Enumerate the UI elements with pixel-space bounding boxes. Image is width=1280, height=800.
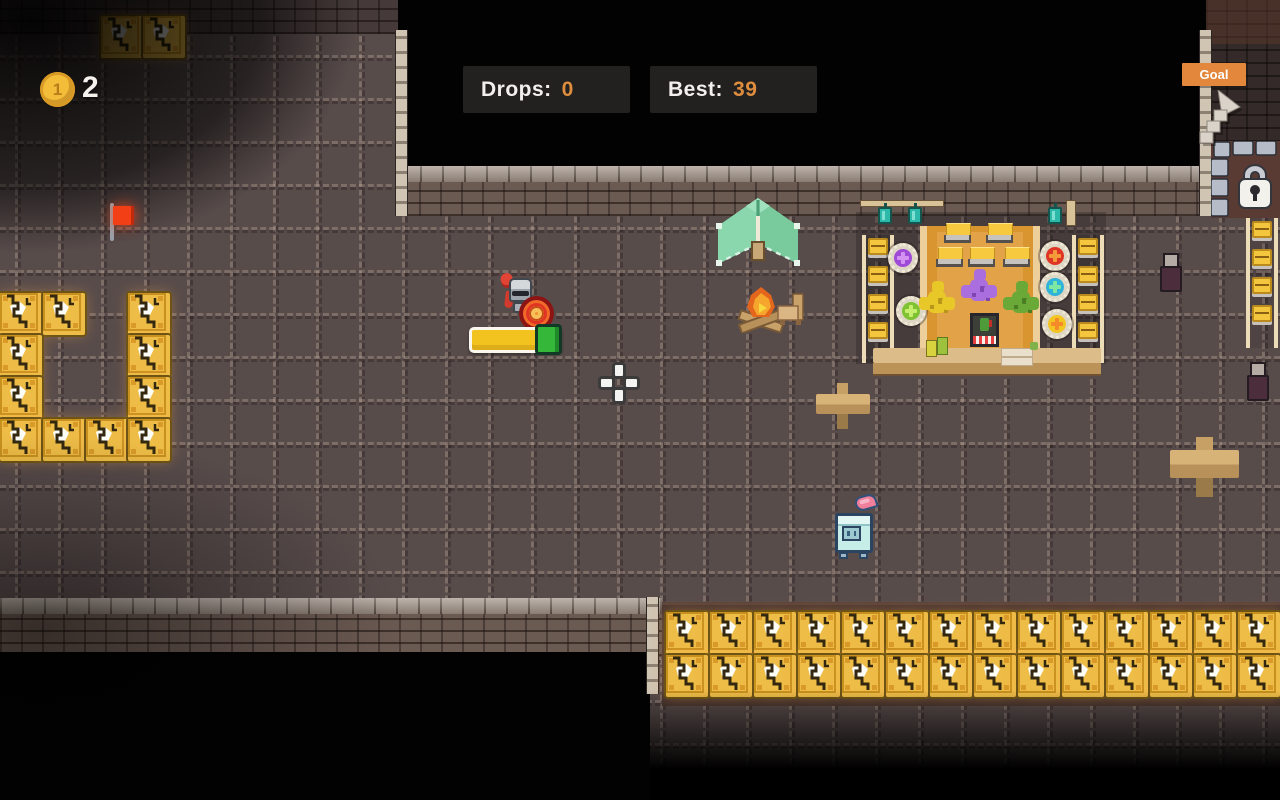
gold-crate	[798, 612, 840, 654]
gold-crate	[0, 293, 42, 335]
coin-count: 2	[82, 71, 99, 105]
machine-body	[835, 513, 873, 553]
hanging-lantern-icon	[878, 207, 892, 224]
wall-shelf-right-edge	[1246, 218, 1278, 348]
gold-crate	[0, 377, 42, 419]
gold-crate	[842, 612, 884, 654]
game-viewport[interactable]: 1 2 Drops: 0 Best: 39 Goal	[0, 0, 1280, 800]
aim-crosshair-icon[interactable]	[598, 362, 640, 404]
item-orb-purple[interactable]	[888, 243, 918, 273]
gold-crate	[754, 612, 796, 654]
visor	[512, 291, 529, 296]
shop-shelf-right	[1072, 235, 1104, 363]
gold-crate	[1106, 612, 1148, 654]
pot-body	[1160, 266, 1182, 292]
item-orb-cyan[interactable]	[1040, 272, 1070, 302]
gold-crate	[1194, 612, 1236, 654]
storage-pot	[1159, 253, 1184, 293]
gold-crate	[1062, 612, 1104, 654]
wooden-sign-large	[1170, 437, 1240, 497]
gold-chest	[868, 266, 888, 283]
gold-crate	[128, 293, 170, 335]
tent	[716, 196, 800, 289]
gold-crate	[930, 612, 972, 654]
gold-crate	[798, 655, 840, 697]
gold-crate	[43, 293, 85, 335]
plant-yellow	[922, 283, 952, 321]
machine-vent	[842, 526, 861, 541]
best-value: 39	[733, 78, 757, 102]
gold-crate	[101, 16, 143, 58]
gold-crate	[1238, 655, 1280, 697]
storage-pot	[1246, 362, 1271, 402]
gold-crate	[886, 612, 928, 654]
red-flag	[113, 206, 134, 225]
gold-chest	[868, 294, 888, 311]
machine-leg	[859, 552, 868, 559]
market-stand	[968, 247, 995, 267]
shop-rack	[860, 200, 944, 207]
gold-crate	[974, 655, 1016, 697]
plant-green	[1006, 283, 1036, 321]
parcel	[1001, 348, 1033, 366]
gold-crate	[0, 335, 42, 377]
gold-crate	[0, 419, 42, 461]
gold-crate	[1150, 612, 1192, 654]
gold-chest	[1078, 322, 1098, 339]
drops-value: 0	[562, 78, 574, 102]
gold-chest	[1252, 305, 1272, 322]
gold-crate	[710, 612, 752, 654]
shop-counter	[873, 348, 1101, 374]
gold-crate	[128, 377, 170, 419]
market-stand	[944, 223, 971, 243]
plant-purple	[964, 271, 994, 309]
item-orb-yellow[interactable]	[1042, 309, 1072, 339]
gold-chest	[1252, 221, 1272, 238]
gold-chest	[1252, 277, 1272, 294]
crate-layer	[0, 0, 1280, 800]
gold-crate	[710, 655, 752, 697]
gold-crate	[1238, 612, 1280, 654]
gold-crate	[930, 655, 972, 697]
gold-crate	[86, 419, 128, 461]
gold-crate	[128, 419, 170, 461]
gold-crate	[666, 612, 708, 654]
gold-chest	[868, 322, 888, 339]
gold-chest	[868, 238, 888, 255]
gold-crate	[1106, 655, 1148, 697]
gold-chest	[1078, 238, 1098, 255]
best-panel: Best: 39	[650, 66, 817, 113]
market-stall	[858, 193, 1104, 379]
gold-crate	[128, 335, 170, 377]
shop-rack-post	[1066, 200, 1076, 226]
market-stand	[936, 247, 963, 267]
coin-face: 1	[53, 80, 62, 100]
gold-crate	[886, 655, 928, 697]
hanging-lantern-icon	[1048, 207, 1062, 224]
gold-crate	[1062, 655, 1104, 697]
goal-arrow-icon	[1192, 90, 1242, 161]
wooden-sign-small	[816, 383, 870, 429]
stool	[776, 288, 806, 333]
energy-cell	[535, 324, 562, 355]
potion-bottles	[926, 337, 948, 355]
gold-crate	[43, 419, 85, 461]
gold-crate	[666, 655, 708, 697]
padlock-icon	[1239, 165, 1271, 208]
drop-machine[interactable]	[831, 497, 881, 559]
best-label: Best:	[668, 78, 723, 102]
gold-crate	[1018, 612, 1060, 654]
gold-chest	[1252, 249, 1272, 266]
item-orb-red[interactable]	[1040, 241, 1070, 271]
drops-label: Drops:	[481, 78, 552, 102]
market-stand	[986, 223, 1013, 243]
sign-board	[1170, 450, 1239, 478]
gold-crate	[974, 612, 1016, 654]
gold-crate	[1018, 655, 1060, 697]
gold-crate	[143, 16, 185, 58]
gold-crate	[1194, 655, 1236, 697]
goal-badge: Goal	[1182, 63, 1246, 86]
hanging-lantern-icon	[908, 207, 922, 224]
sign-board	[816, 394, 870, 414]
drops-panel: Drops: 0	[463, 66, 630, 113]
gold-chest	[1078, 266, 1098, 283]
machine-leg	[839, 552, 848, 559]
market-stand	[1003, 247, 1030, 267]
pot-body	[1247, 375, 1269, 401]
gold-chest	[1078, 294, 1098, 311]
gold-crate	[754, 655, 796, 697]
shopkeeper-booth[interactable]	[970, 313, 999, 347]
gold-crate	[1150, 655, 1192, 697]
coin-icon: 1	[40, 72, 75, 107]
gold-crate	[842, 655, 884, 697]
